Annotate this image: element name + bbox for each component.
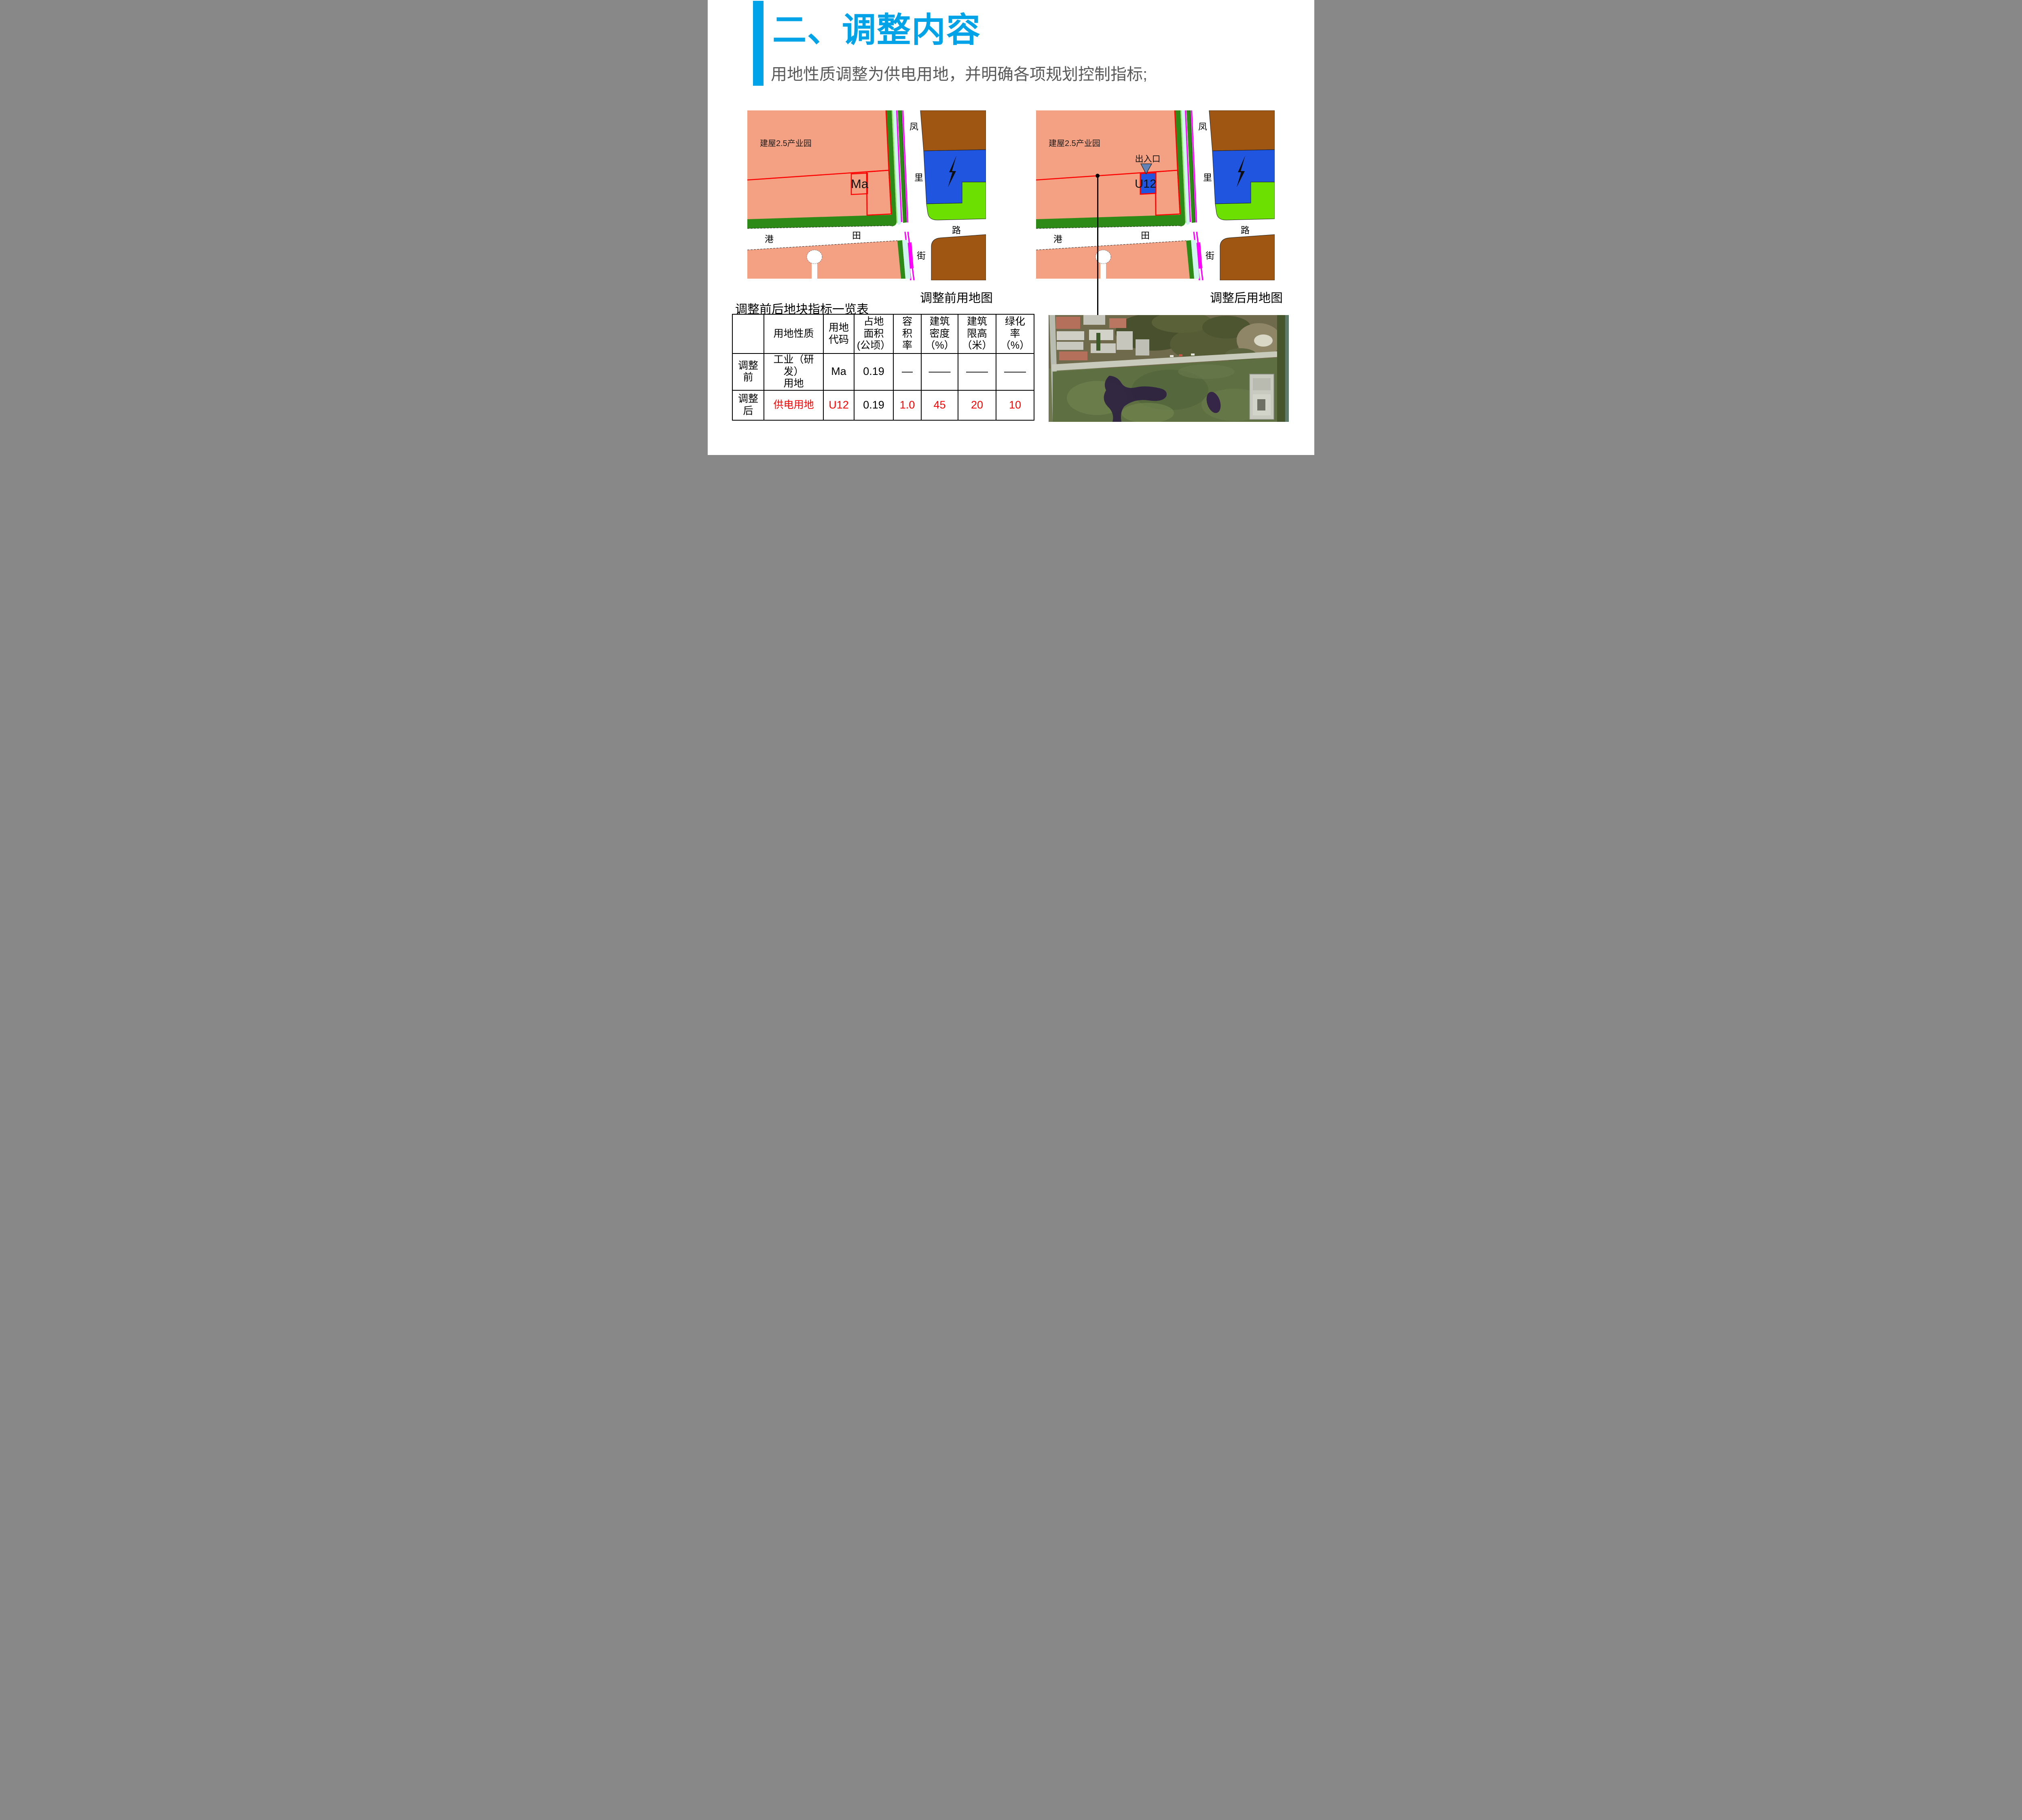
before-height-limit: ——	[958, 365, 996, 378]
header-area: 占地 面积 (公顷）	[854, 316, 893, 352]
header-green-ratio: 绿化 率 （%）	[996, 316, 1034, 352]
page-subtitle: 用地性质调整为供电用地，并明确各项规划控制指标;	[771, 65, 1147, 84]
before-land-code: Ma	[824, 365, 854, 378]
after-land-use: 供电用地	[764, 399, 823, 411]
table-row-after: 调整 后 供电用地 U12 0.19 1.0 45 20 10	[732, 390, 1034, 420]
table-header-cell: 建筑 密度 （%）	[921, 314, 958, 353]
before-density: ——	[922, 365, 958, 378]
table-cell: 10	[996, 390, 1034, 420]
plot-ma-code: Ma	[851, 177, 869, 191]
table-header-cell: 用地 代码	[823, 314, 854, 353]
table-cell: 45	[921, 390, 958, 420]
title-accent-bar	[753, 1, 764, 86]
aerial-photo-image	[1049, 315, 1289, 422]
table-header-cell: 用地性质	[764, 314, 823, 353]
table-cell: ——	[958, 353, 996, 390]
row-label-cell: 调整 前	[732, 353, 764, 390]
table-header-cell: 建筑 限高 （米）	[958, 314, 996, 353]
table-cell: 0.19	[854, 353, 893, 390]
header-far: 容 积 率	[894, 316, 921, 352]
slide: 建屋2.5产业园 凤 里 街 港 田 路 二、调整内容 用地性质调整为供电用地，…	[708, 0, 1314, 455]
table-header-cell	[732, 314, 764, 353]
entrance-label: 出入口	[1135, 154, 1161, 164]
table-cell: Ma	[823, 353, 854, 390]
before-area: 0.19	[854, 365, 893, 378]
table-cell: 供电用地	[764, 390, 823, 420]
row-label-cell: 调整 后	[732, 390, 764, 420]
aerial-photo	[1049, 315, 1289, 422]
header-height-limit: 建筑 限高 （米）	[958, 316, 996, 352]
table-row-before: 调整 前 工业（研发） 用地 Ma 0.19 — —— —— ——	[732, 353, 1034, 390]
caption-map-before: 调整前用地图	[912, 288, 993, 306]
row-before-label: 调整 前	[733, 360, 764, 384]
row-after-label: 调整 后	[733, 393, 764, 417]
after-green-ratio: 10	[996, 399, 1034, 412]
map-before: Ma	[747, 110, 986, 280]
before-land-use: 工业（研发） 用地	[764, 354, 823, 390]
map-after: U12 出入口	[1036, 110, 1275, 280]
page-title: 二、调整内容	[772, 11, 981, 50]
table-cell: —	[893, 353, 921, 390]
table-cell: 20	[958, 390, 996, 420]
after-far: 1.0	[894, 399, 921, 412]
after-area: 0.19	[854, 399, 893, 412]
table-cell: 1.0	[893, 390, 921, 420]
caption-map-after: 调整后用地图	[1202, 288, 1283, 306]
header-land-code: 用地 代码	[824, 322, 854, 346]
table-cell: 0.19	[854, 390, 893, 420]
before-far: —	[894, 365, 921, 378]
header-land-use: 用地性质	[764, 328, 823, 340]
after-height-limit: 20	[958, 399, 996, 412]
indicator-table: 用地性质 用地 代码 占地 面积 (公顷） 容 积 率 建筑 密度 （%） 建筑…	[732, 314, 1034, 421]
after-density: 45	[922, 399, 958, 412]
map-before-panel: Ma	[747, 110, 986, 280]
table-cell: 工业（研发） 用地	[764, 353, 823, 390]
table-cell: ——	[921, 353, 958, 390]
table-cell: ——	[996, 353, 1034, 390]
table-header-cell: 绿化 率 （%）	[996, 314, 1034, 353]
table-cell: U12	[823, 390, 854, 420]
header-density: 建筑 密度 （%）	[922, 316, 958, 352]
table-header-cell: 容 积 率	[893, 314, 921, 353]
before-green-ratio: ——	[996, 365, 1034, 378]
plot-u12-code: U12	[1135, 178, 1156, 190]
map-after-panel: U12 出入口	[1036, 110, 1275, 280]
connector-line	[1097, 176, 1098, 315]
table-header-cell: 占地 面积 (公顷）	[854, 314, 893, 353]
table-header-row: 用地性质 用地 代码 占地 面积 (公顷） 容 积 率 建筑 密度 （%） 建筑…	[732, 314, 1034, 353]
after-land-code: U12	[824, 399, 854, 412]
